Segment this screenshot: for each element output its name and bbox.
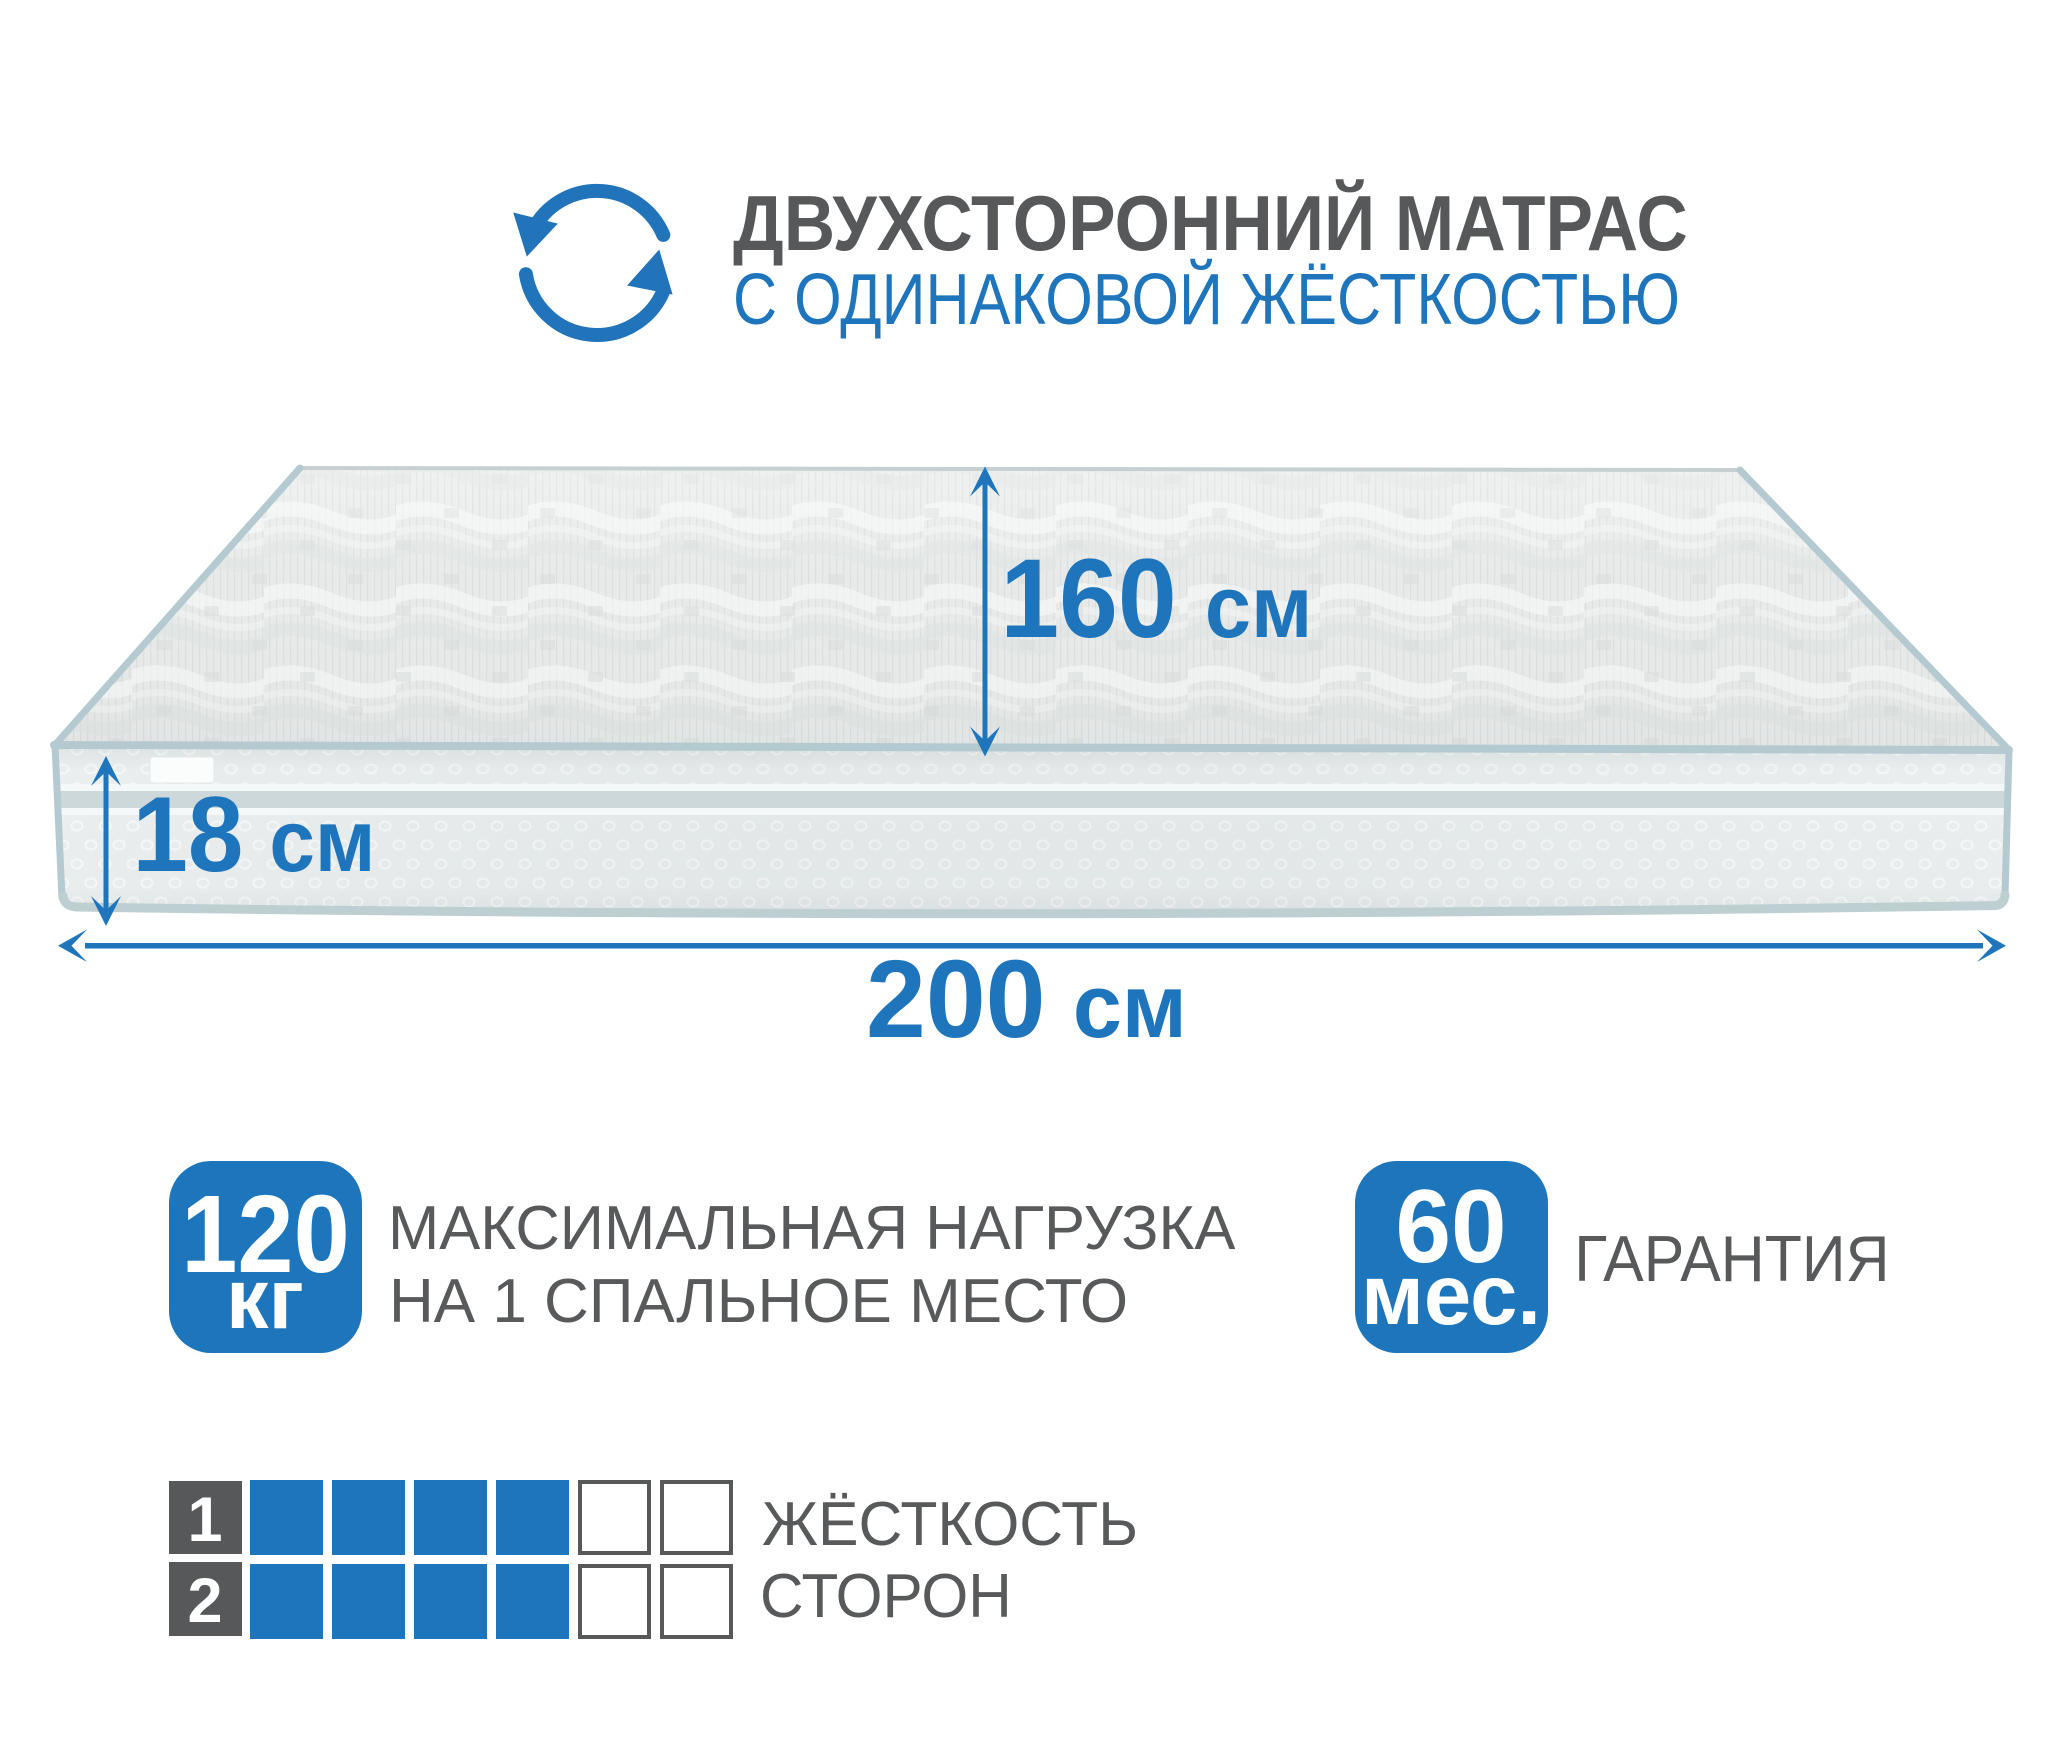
svg-text:ЖЁСТКОСТЬ: ЖЁСТКОСТЬ <box>762 1489 1138 1559</box>
svg-text:ДВУХСТОРОННИЙ МАТРАС: ДВУХСТОРОННИЙ МАТРАС <box>733 179 1688 267</box>
svg-text:1: 1 <box>187 1485 222 1555</box>
svg-text:ГАРАНТИЯ: ГАРАНТИЯ <box>1574 1223 1889 1295</box>
svg-text:МАКСИМАЛЬНАЯ НАГРУЗКА: МАКСИМАЛЬНАЯ НАГРУЗКА <box>388 1194 1236 1263</box>
svg-text:кг: кг <box>226 1252 304 1347</box>
svg-text:НА 1 СПАЛЬНОЕ МЕСТО: НА 1 СПАЛЬНОЕ МЕСТО <box>389 1267 1128 1336</box>
svg-text:СТОРОН: СТОРОН <box>760 1561 1012 1630</box>
svg-text:С ОДИНАКОВОЙ ЖЁСТКОСТЬЮ: С ОДИНАКОВОЙ ЖЁСТКОСТЬЮ <box>733 258 1680 340</box>
svg-text:200см: 200см <box>866 939 1187 1061</box>
svg-text:мес.: мес. <box>1361 1248 1541 1343</box>
svg-text:2: 2 <box>187 1566 222 1636</box>
